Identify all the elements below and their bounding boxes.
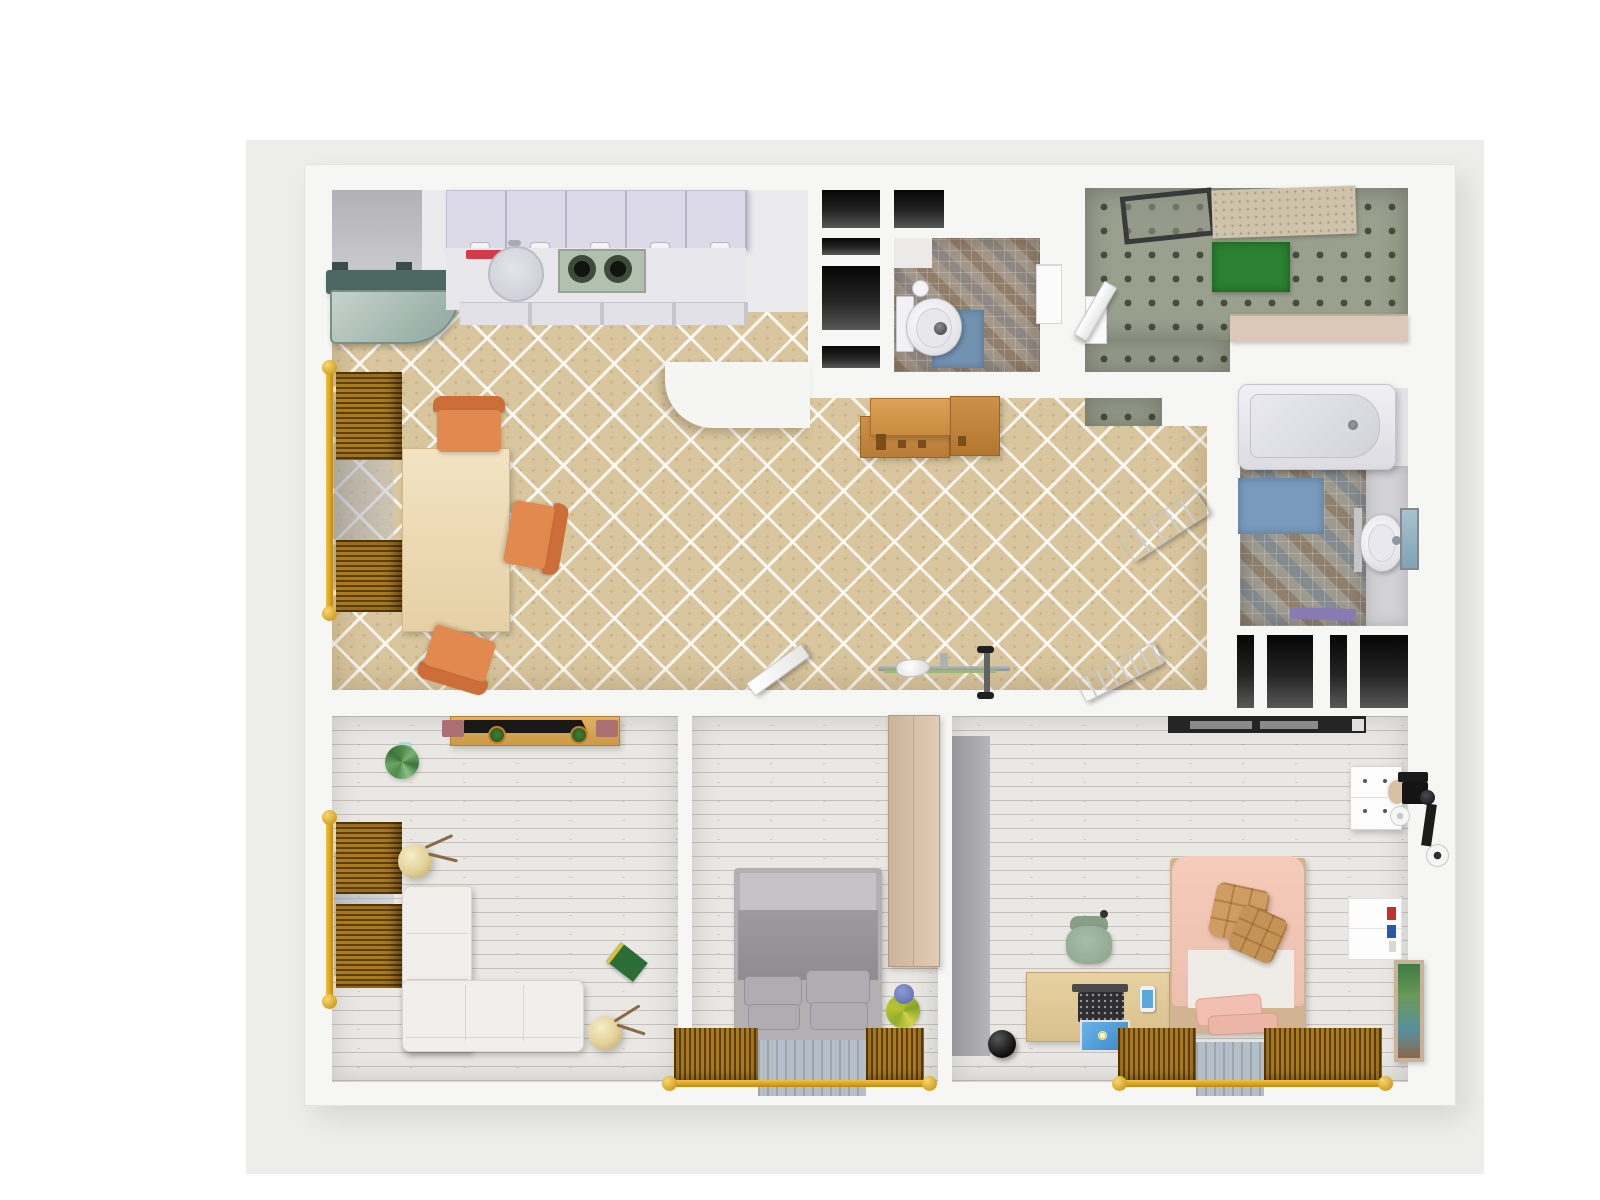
console-niche (876, 434, 886, 450)
bedroom2-wall-shadow-column (952, 736, 990, 1056)
phone (1140, 986, 1155, 1012)
closet-cell (822, 190, 880, 228)
bed-gray-folded-sheet (740, 872, 876, 914)
bed-pillow (744, 976, 802, 1006)
rod-finial (662, 1076, 677, 1091)
purple-towel (1290, 607, 1356, 621)
pink-bookend (442, 720, 464, 737)
floor-plan-render (0, 0, 1600, 1200)
bed-pillow (748, 1004, 800, 1030)
bathtub-drain (1348, 420, 1358, 430)
stove-burner (604, 255, 632, 283)
bed-pillow (810, 1002, 868, 1030)
rod-finial (922, 1076, 937, 1091)
coat-rail-slot (1260, 721, 1318, 729)
sink-faucet (508, 240, 521, 246)
toilet-paper-roll (912, 280, 929, 297)
window-blind (336, 904, 402, 988)
exercise-bike-grip (977, 646, 994, 653)
rod-finial (1378, 1076, 1393, 1091)
counter-drawers (460, 302, 748, 325)
bathroom-mirror (1400, 508, 1419, 570)
rod-finial (322, 606, 337, 621)
chair-seat (437, 410, 501, 452)
exercise-bike-post (940, 653, 948, 669)
kitchen-sink (488, 246, 544, 302)
rod-finial (322, 810, 337, 825)
toilet-drain (934, 322, 947, 335)
curtain-rod (326, 368, 333, 612)
wc-wall-shelf (1036, 264, 1062, 324)
rounded-wall-partition (665, 362, 810, 428)
window-blind (336, 372, 402, 460)
console-right (950, 396, 1000, 456)
sofa-cushion-seam (465, 985, 466, 1041)
curtain-rod (1120, 1080, 1382, 1087)
picture-frame (1394, 960, 1424, 1062)
closet-cell (822, 266, 880, 330)
stove-burner (568, 255, 596, 283)
dining-table (402, 448, 510, 632)
screen-daisy (1098, 1031, 1107, 1040)
mini-plant (488, 726, 506, 744)
closet-cell (822, 238, 880, 255)
window-blind (336, 540, 402, 612)
window-rug (758, 1040, 866, 1096)
coat-rail-slot (1190, 721, 1252, 729)
typewriter-body (1078, 992, 1124, 1022)
kitchen-wall-cabinets (446, 190, 748, 250)
closet-cell (894, 190, 944, 228)
book-spine (1387, 907, 1396, 920)
closet-cell (822, 346, 880, 368)
pink-bookend (596, 720, 618, 737)
book-spine (1389, 941, 1396, 952)
typewriter-carriage (1072, 984, 1128, 992)
camera-plate (1398, 772, 1428, 782)
desk-chair (1066, 916, 1112, 964)
exercise-bike-grip (977, 692, 994, 699)
drawer-knob (1363, 779, 1367, 783)
coat-rail (1168, 716, 1366, 733)
paper-lantern-lamp (398, 844, 432, 878)
tv-soundbar (458, 720, 588, 733)
ceiling-drying-rack (1120, 187, 1217, 244)
green-mat (1212, 242, 1290, 292)
corner-plant (385, 745, 419, 779)
book-spine (1387, 925, 1396, 938)
window-blind (1264, 1028, 1382, 1086)
sofa-seat-section (402, 980, 584, 1052)
bed-pillow (806, 970, 870, 1004)
vestibule-dot-strip (1085, 398, 1162, 426)
sofa-cushion-seam (407, 933, 467, 934)
window-rug (1196, 1042, 1264, 1096)
rod-finial (322, 360, 337, 375)
console-mid (870, 398, 954, 436)
curtain-rod (326, 818, 333, 1000)
sofa-front-seam (406, 1037, 580, 1038)
console-niche (918, 440, 926, 448)
curtain-rod (668, 1080, 928, 1087)
closet-cell (1330, 635, 1347, 708)
rod-finial (1112, 1076, 1127, 1091)
sofa-cushion-seam (523, 985, 524, 1041)
coat-rail-endcap (1352, 719, 1364, 731)
bathtub-basin (1250, 394, 1380, 458)
kitchen-corner-wall-face (332, 190, 422, 270)
paper-roll (1426, 844, 1449, 867)
wall-shelf (1348, 898, 1402, 960)
wc-corner-nook (894, 238, 932, 268)
window-blind (866, 1028, 924, 1086)
wardrobe (888, 715, 940, 967)
console-niche (898, 440, 906, 448)
rod-finial (322, 994, 337, 1009)
drawer-knob (1383, 779, 1387, 783)
black-ball (988, 1030, 1016, 1058)
bath-blue-mat (1238, 478, 1324, 534)
utility-tan-counter (1230, 314, 1408, 342)
drawer-knob (1363, 809, 1367, 813)
chair-seat (1066, 926, 1112, 964)
dining-chair (433, 396, 505, 452)
tan-mat (1211, 186, 1357, 239)
console-niche (958, 436, 966, 446)
window-blind (1118, 1028, 1196, 1086)
window-blind (674, 1028, 758, 1086)
drawer-knob (1383, 809, 1387, 813)
window-blind (336, 822, 402, 894)
wardrobe-seam (913, 716, 914, 966)
closet-cell (1237, 635, 1254, 708)
flower-vase (894, 984, 914, 1004)
exercise-bike-stem (984, 650, 990, 696)
mini-plant (570, 726, 588, 744)
chair-knob (1100, 910, 1108, 918)
utility-floor-extension (1085, 340, 1230, 372)
phone-screen (1142, 990, 1153, 1008)
closet-cell (1360, 635, 1408, 708)
paper-roll (1390, 806, 1410, 826)
closet-cell (1267, 635, 1313, 708)
